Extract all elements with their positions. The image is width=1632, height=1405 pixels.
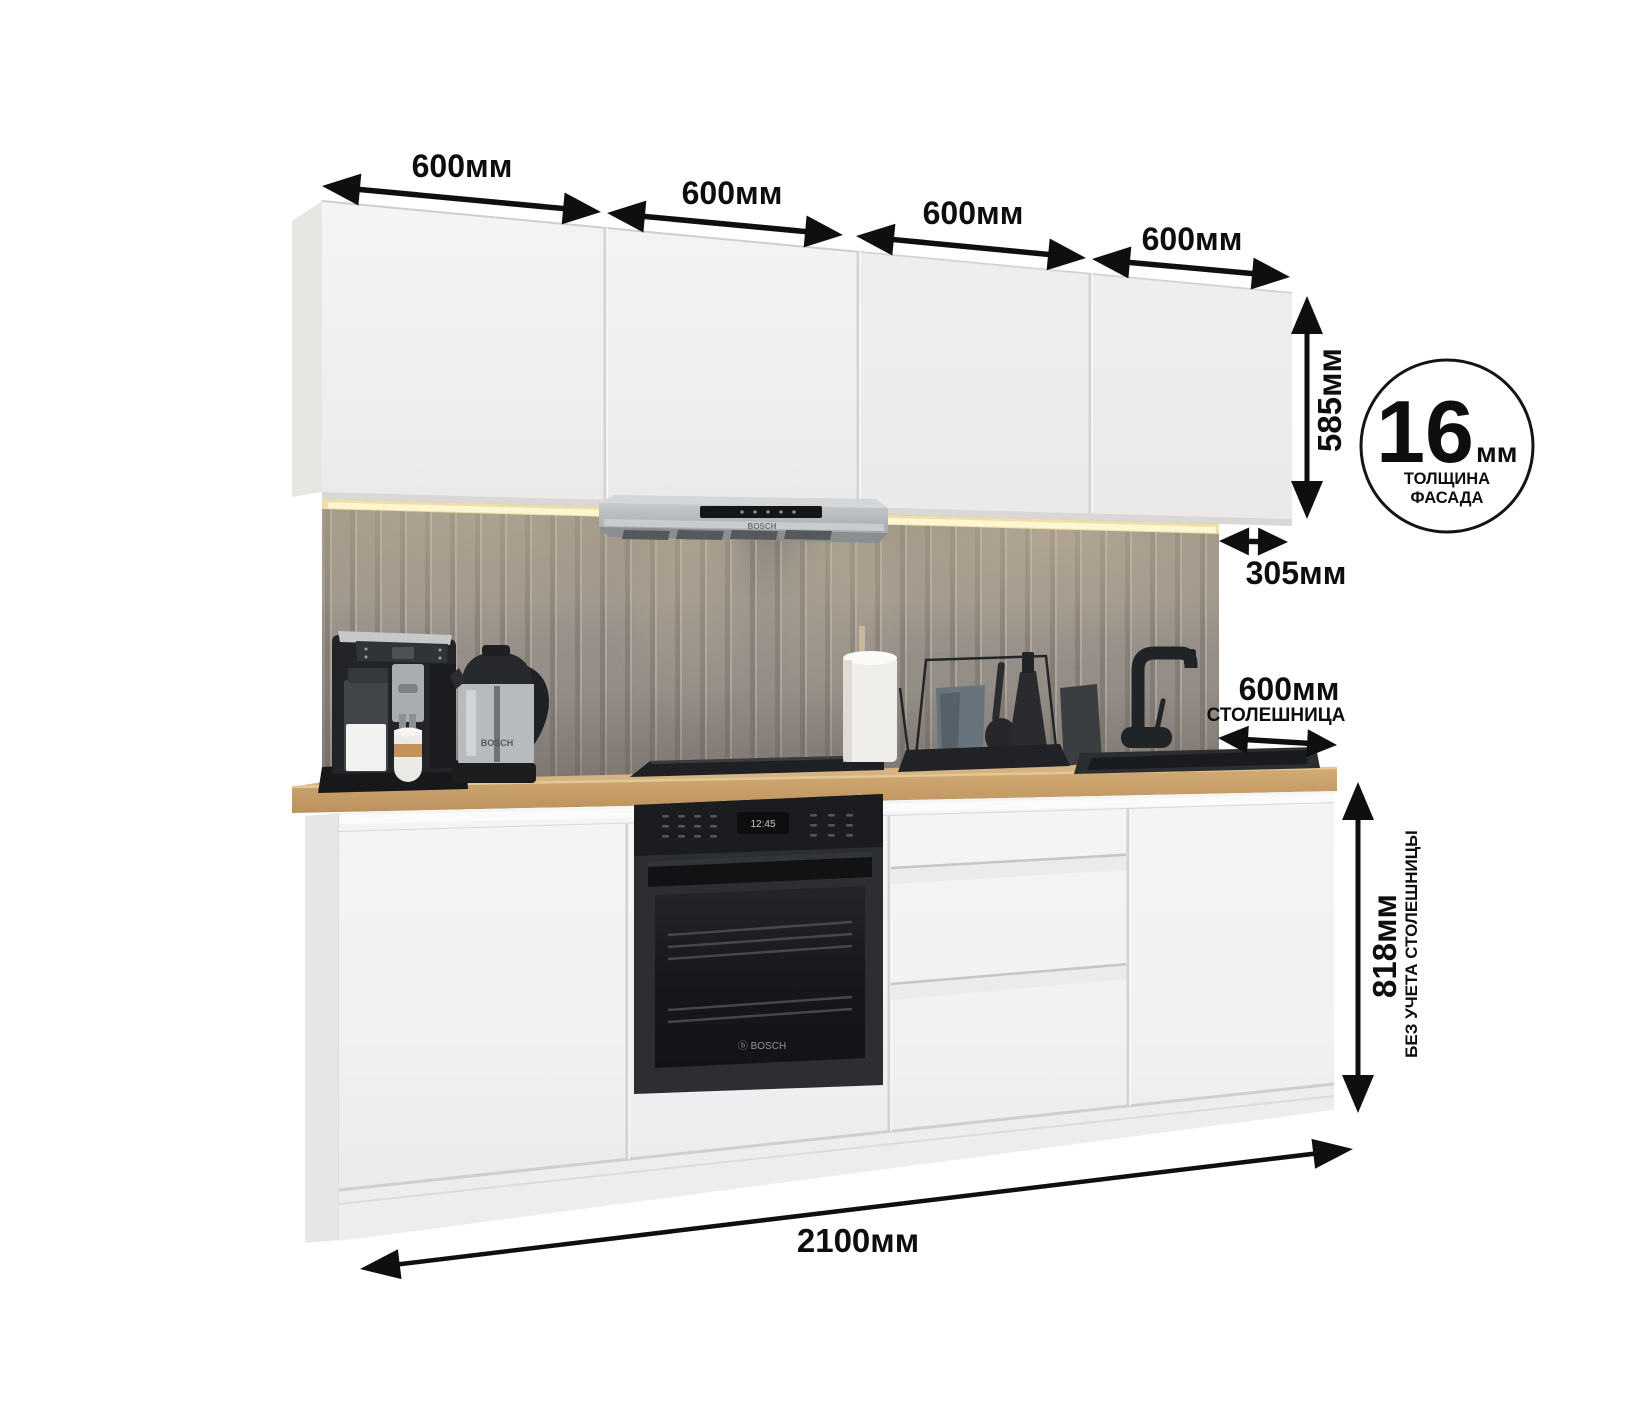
svg-text:818мм: 818мм xyxy=(1366,894,1403,998)
svg-text:585мм: 585мм xyxy=(1311,348,1348,452)
svg-text:БЕЗ УЧЕТА СТОЛЕШНИЦЫ: БЕЗ УЧЕТА СТОЛЕШНИЦЫ xyxy=(1402,830,1421,1058)
svg-text:ТОЛЩИНА: ТОЛЩИНА xyxy=(1404,470,1490,488)
svg-text:BOSCH: BOSCH xyxy=(748,522,777,531)
svg-text:2100мм: 2100мм xyxy=(797,1222,919,1259)
svg-text:600мм: 600мм xyxy=(682,175,783,211)
svg-text:12:45: 12:45 xyxy=(750,819,775,830)
svg-text:600мм: 600мм xyxy=(1239,671,1340,707)
svg-text:мм: мм xyxy=(1476,437,1517,468)
svg-text:ФАСАДА: ФАСАДА xyxy=(1411,489,1484,507)
svg-text:BOSCH: BOSCH xyxy=(481,738,514,748)
svg-text:600мм: 600мм xyxy=(412,148,513,184)
svg-text:600мм: 600мм xyxy=(923,195,1024,231)
svg-text:305мм: 305мм xyxy=(1246,555,1347,591)
svg-text:600мм: 600мм xyxy=(1142,221,1243,257)
svg-text:СТОЛЕШНИЦА: СТОЛЕШНИЦА xyxy=(1207,705,1346,726)
svg-text:ⓑ BOSCH: ⓑ BOSCH xyxy=(738,1040,786,1052)
svg-text:16: 16 xyxy=(1376,382,1474,481)
